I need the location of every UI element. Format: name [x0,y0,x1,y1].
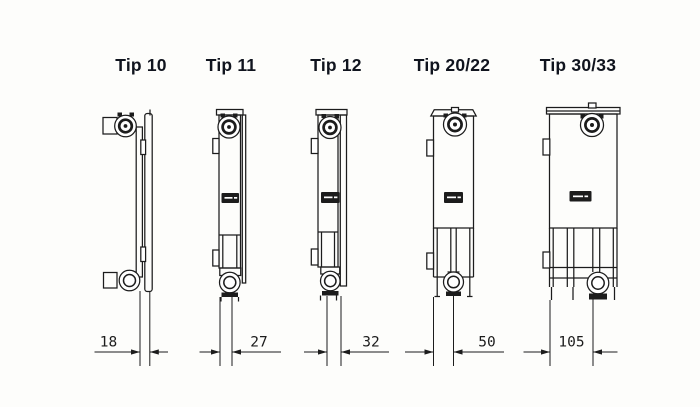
wall-bracket [543,252,550,268]
depth-value-tip-12: 32 [362,335,379,351]
top-valve [444,108,467,137]
type-label-tip-2022: Tip 20/22 [407,53,497,77]
type-label-tip-3033: Tip 30/33 [533,53,623,77]
radiator-types-diagram: Tip 10 Tip 11 Tip 12 Tip 20/22 Tip 30/33 [0,0,700,407]
depth-value-tip-11: 27 [250,335,267,351]
panel-clip [141,140,146,155]
depth-value-tip-3033: 105 [558,335,584,351]
panel-body [543,108,620,301]
type-label-tip-10: Tip 10 [101,53,181,77]
radiator-drawing-tip-12: 32 [298,98,395,370]
depth-dimension: 18 [95,291,169,366]
depth-value-tip-2022: 50 [478,335,495,351]
panel-body [136,110,152,292]
top-valve [218,114,240,139]
wall-bracket [427,140,434,156]
top-valve [103,113,136,137]
panel-clip [141,247,146,262]
wall-bracket [311,249,318,265]
panel-body [427,110,476,297]
depth-dimension: 32 [304,296,389,366]
depth-dimension: 27 [200,297,282,366]
wall-bracket [427,253,434,269]
bottom-valve [104,270,140,291]
bottom-valve [587,272,609,299]
radiator-drawing-tip-10: 18 [90,98,185,370]
radiator-drawing-tip-3033: 105 [520,98,660,370]
top-valve [319,114,341,139]
depth-dimension: 50 [405,292,504,366]
type-label-tip-11: Tip 11 [191,53,271,77]
type-label-tip-12: Tip 12 [296,53,376,77]
bottom-valve [220,268,241,302]
bottom-valve [321,267,341,301]
wall-bracket [543,139,550,155]
wall-bracket [213,250,219,266]
radiator-drawing-tip-11: 27 [195,98,295,370]
wall-bracket [213,139,219,154]
radiator-drawing-tip-2022: 50 [400,98,515,370]
wall-bracket [311,139,318,154]
depth-value-tip-10: 18 [100,335,117,351]
depth-dimension: 105 [524,300,618,367]
